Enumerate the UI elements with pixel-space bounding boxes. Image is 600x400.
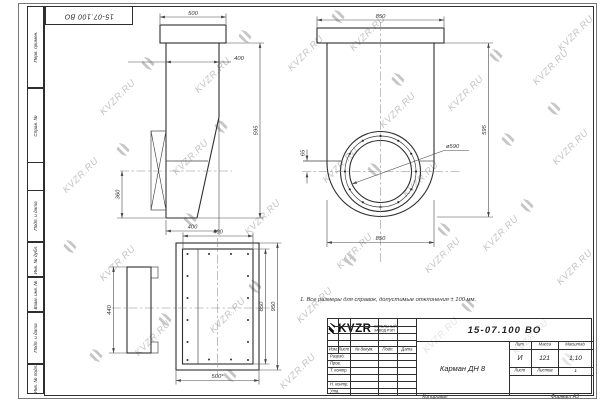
tb-scale-value: 1:10 xyxy=(558,349,593,367)
tb-part-name: Карман ДН 8 xyxy=(416,341,509,395)
margin-box-podp-data-2: Подп. и дата xyxy=(28,312,43,364)
margin-strip: Перв. примен. Справ. № Подп. и дата Инв.… xyxy=(27,6,44,394)
tb-col-sign: Подп. xyxy=(378,346,397,353)
margin-label: Подп. и дата xyxy=(33,201,38,230)
margin-box-inv-dubl: Инв. № дубл. xyxy=(28,242,43,277)
margin-label: Инв. № дубл. xyxy=(33,245,38,274)
tb-mass-label: Масса xyxy=(531,341,558,349)
margin-label: Инв. № подл. xyxy=(33,364,38,393)
tb-sheet-label: Лист xyxy=(509,367,531,375)
tb-lit-label: Лит. xyxy=(509,341,531,349)
title-block: Изм. Лист № докум. Подп. Дата Разраб. Пр… xyxy=(327,318,592,394)
top-doc-number-stamp: 15-07.100 ВО xyxy=(45,6,133,25)
tb-sheets-value: 1 xyxy=(558,367,593,375)
tb-doc-number: 15-07.100 ВО xyxy=(416,319,593,341)
tb-mass-value: 121 xyxy=(531,349,558,367)
copied-label: Копировал xyxy=(401,394,469,399)
tb-col-doc: № докум. xyxy=(350,346,378,353)
tb-row-ncontrol: Н. контр. xyxy=(330,381,352,388)
tb-row-approved: Утв. xyxy=(330,388,352,395)
margin-box-sprav: Справ. № xyxy=(28,88,43,163)
tb-col-izm: Изм. xyxy=(328,346,338,353)
margin-label: Справ. № xyxy=(33,115,38,136)
margin-box-inv-podl: Инв. № подл. xyxy=(28,364,43,394)
tb-row-developed: Разраб. xyxy=(330,353,352,360)
margin-label: Подп. и дата xyxy=(33,323,38,352)
margin-label: Перв. примен. xyxy=(33,31,38,62)
tb-col-date: Дата xyxy=(397,346,416,353)
format-label: Формат А3 xyxy=(540,394,591,399)
tb-row-tcontrol: Т. контр. xyxy=(330,367,352,374)
top-doc-number: 15-07.100 ВО xyxy=(64,12,113,19)
tb-row-checked: Пров. xyxy=(330,360,352,367)
drawing-sheet: KVZR.RUKVZR.RUKVZR.RUKVZR.RUKVZR.RUKVZR.… xyxy=(0,0,600,400)
tb-col-list: Лист xyxy=(338,346,350,353)
margin-box-perv-primen: Перв. примен. xyxy=(28,6,43,88)
tb-company-cell: KVZR КОТЕЛЬНЫЙ ЗАВОД РЭП xyxy=(328,319,412,339)
margin-label: Взам. инв. № xyxy=(33,280,38,309)
tb-scale-label: Масштаб xyxy=(558,341,593,349)
margin-box-vzam-inv: Взам. инв. № xyxy=(28,277,43,312)
tb-lit-value: И xyxy=(509,349,531,367)
margin-box-podp-data-1: Подп. и дата xyxy=(28,190,43,242)
tb-sheets-label: Листов xyxy=(531,367,558,375)
drawing-note: 1. Все размеры для справок, допустимые о… xyxy=(300,297,510,303)
